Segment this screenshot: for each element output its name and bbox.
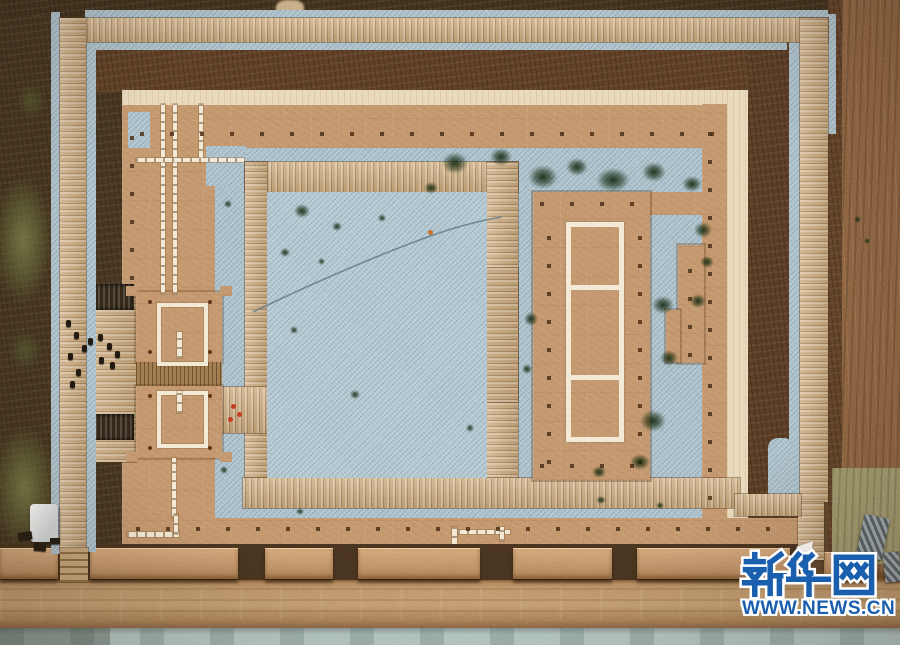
gravel-edge-left-outer [51,12,60,554]
gate-north-tower-outline [157,303,208,366]
vegetation-patch [490,148,512,166]
south-wall-block [0,548,58,579]
gate-corner-nub-3 [126,452,138,462]
glyph-hua [787,552,831,596]
gravel-edge-top-inner [85,42,787,50]
visitor-person [98,334,103,341]
trench-line-vertical-south [172,458,176,518]
visitor-person [68,353,73,360]
vegetation-patch [296,508,304,515]
gravel-edge-right-outer [828,14,836,134]
vegetation-patch [566,158,588,176]
post-hole [148,446,152,450]
orange-mark-on-crack [428,230,433,235]
courtyard-walk-south[interactable] [243,478,740,508]
visitor-person [115,351,120,358]
post-hole [148,300,152,304]
vegetation-patch [682,176,702,192]
vegetation-patch [642,162,666,182]
post-hole [148,350,152,354]
news-watermark: 新华网 WWW.NEWS.CN [742,552,895,620]
post-hole [208,446,212,450]
glyph-xin [742,552,786,596]
hall-foundation-outline [566,222,624,442]
east-wall-crest [727,90,748,520]
red-survey-mark [237,412,242,417]
vegetation-patch [700,256,714,268]
gate-north-outline-stub [177,332,182,358]
north-wall-crest [122,90,748,105]
red-survey-mark [228,417,233,422]
boardwalk-west[interactable] [60,18,86,548]
vegetation-patch [640,410,666,432]
post-holes-west-band [130,115,134,280]
visitor-person [70,381,75,388]
vegetation-patch [524,312,538,326]
post-holes-south-wall [136,527,786,531]
gravel-pocket-nw-2 [206,146,246,186]
gravel-edge-left-inner [86,12,96,552]
vegetation-patch [350,390,360,399]
south-wall-block [90,548,238,579]
gravel-edge-top-outer [85,10,828,18]
aerial-photo-archaeological-site: 新华网 WWW.NEWS.CN [0,0,900,645]
boardwalk-west-steps[interactable] [60,548,88,582]
vegetation-patch [224,200,232,208]
visitor-person [88,338,93,345]
vegetation-patch [332,222,342,231]
trench-line-sw [127,532,179,537]
moss-patch [16,84,46,118]
vegetation-patch [694,222,712,238]
post-holes-platform-left [547,212,551,464]
post-hole [208,394,212,398]
vegetation-patch [522,364,532,374]
south-wall-block [358,548,480,579]
water-channel-dark-left [0,628,110,645]
post-holes-east-wall [708,130,712,500]
gate-corner-nub-1 [126,286,138,296]
post-hole [208,300,212,304]
white-tent [30,504,58,542]
boardwalk-se-branch[interactable] [735,494,801,516]
north-wall-band [122,104,748,148]
vegetation-patch [442,152,468,174]
visitor-person [107,343,112,350]
gate-south-outline-stub [177,391,182,413]
xinhuanet-logo [742,552,876,596]
visitor-person [82,345,87,352]
watermark-url: WWW.NEWS.CN [742,598,895,620]
vegetation-patch [652,296,674,314]
vegetation-patch [854,216,861,223]
water-channel [0,628,900,645]
moss-patch [8,330,42,370]
east-wall-band [702,104,727,520]
south-wall-block [513,548,612,579]
gravel-edge-right-inner [789,42,800,504]
vegetation-patch [280,248,290,257]
south-wall-block [265,548,333,579]
vegetation-patch [220,466,228,474]
boardwalk-east[interactable] [800,18,828,502]
vegetation-patch [592,466,606,478]
post-holes-platform-top [540,202,648,206]
visitor-person [99,357,104,364]
gate-corner-nub-4 [220,452,232,462]
boardwalk-north[interactable] [85,18,828,42]
vegetation-patch [424,182,438,194]
excavation-pit-south [90,414,134,440]
vegetation-patch [660,350,678,366]
vegetation-patch [630,454,650,470]
visitor-person [66,320,71,327]
equipment [50,538,60,544]
courtyard-walk-top[interactable] [245,162,518,192]
vegetation-patch [466,424,474,432]
post-hole [148,394,152,398]
post-hole [208,350,212,354]
gate-south-tower-outline [157,391,208,448]
post-holes-north-wall [140,132,720,136]
vegetation-patch [528,165,558,189]
grass-patch-left-upper [0,175,52,305]
equipment [34,543,47,551]
red-survey-mark [231,404,236,409]
visitor-person [76,369,81,376]
hall-foundation-rung-1 [571,285,619,290]
glyph-wang [832,552,876,596]
trench-line-horizontal-nw [136,158,244,162]
vegetation-patch [656,502,664,509]
trench-line-sw-return [174,514,178,534]
vegetation-patch [690,294,706,308]
vegetation-patch [596,168,630,192]
vegetation-patch [378,214,386,222]
vegetation-patch [290,326,298,334]
gate-courtyard-connector-walk[interactable] [215,387,267,433]
gate-corner-nub-2 [220,286,232,296]
crack-line [240,190,520,330]
vegetation-patch [864,238,870,244]
visitor-person [110,362,115,369]
vegetation-patch [294,204,310,218]
vegetation-patch [596,496,606,504]
vegetation-patch [318,258,325,265]
hall-foundation-rung-2 [571,375,619,380]
visitor-person [74,332,79,339]
